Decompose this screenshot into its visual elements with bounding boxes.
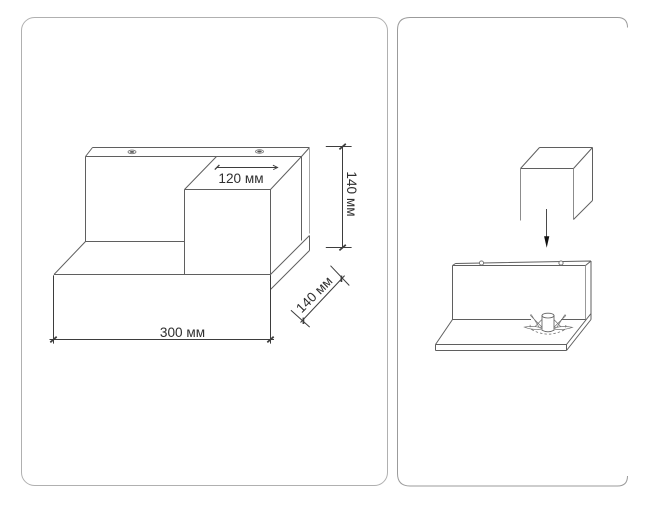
svg-text:300 мм: 300 мм	[160, 325, 205, 340]
svg-text:140 мм: 140 мм	[344, 171, 359, 216]
svg-text:120 мм: 120 мм	[218, 171, 263, 186]
svg-text:140 мм: 140 мм	[293, 273, 335, 315]
